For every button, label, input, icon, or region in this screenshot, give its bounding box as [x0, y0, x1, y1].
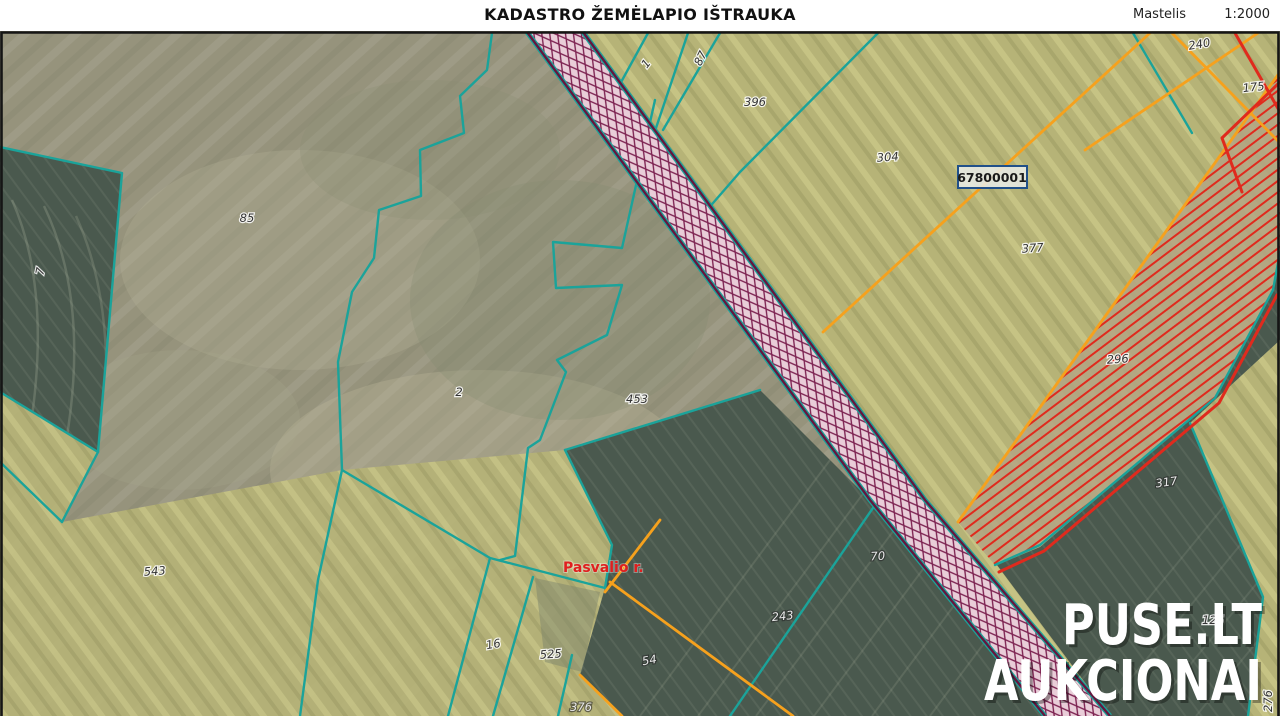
- district-label: Pasvalio r.: [563, 560, 644, 576]
- parcel-label-543: 543: [143, 563, 166, 578]
- parcel-label-304: 304: [876, 149, 899, 164]
- scale-label: Mastelis: [1133, 7, 1186, 22]
- parcel-label-175: 175: [1242, 79, 1265, 95]
- parcel-label-70: 70: [870, 549, 885, 564]
- parcel-label-396: 396: [744, 95, 766, 109]
- parcel-label-243: 243: [771, 608, 794, 624]
- parcel-label-296: 296: [1106, 351, 1129, 366]
- cadastral-extract-page: KADASTRO ŽEMĖLAPIO IŠTRAUKA Mastelis 1:2…: [0, 0, 1280, 716]
- parcel-label-376: 376: [570, 700, 592, 714]
- parcel-label-525: 525: [539, 646, 562, 661]
- parcel-label-453: 453: [626, 392, 648, 406]
- watermark-line2: AUKCIONAI: [984, 649, 1262, 714]
- page-title: KADASTRO ŽEMĖLAPIO IŠTRAUKA: [0, 5, 1280, 24]
- cadastral-block-number: 67800001: [957, 170, 1027, 185]
- scale-value: 1:2000: [1224, 7, 1270, 22]
- parcel-label-2: 2: [455, 385, 462, 399]
- parcel-label-377: 377: [1021, 240, 1045, 256]
- parcel-label-85: 85: [240, 211, 255, 225]
- map-header: KADASTRO ŽEMĖLAPIO IŠTRAUKA Mastelis 1:2…: [0, 0, 1280, 31]
- cadastral-block-label[interactable]: 67800001: [957, 166, 1027, 188]
- cadastral-map[interactable]: 8572453543165251873963043772401752961252…: [0, 0, 1280, 716]
- parcel-label-16: 16: [485, 636, 502, 652]
- parcel-label-54: 54: [641, 652, 658, 668]
